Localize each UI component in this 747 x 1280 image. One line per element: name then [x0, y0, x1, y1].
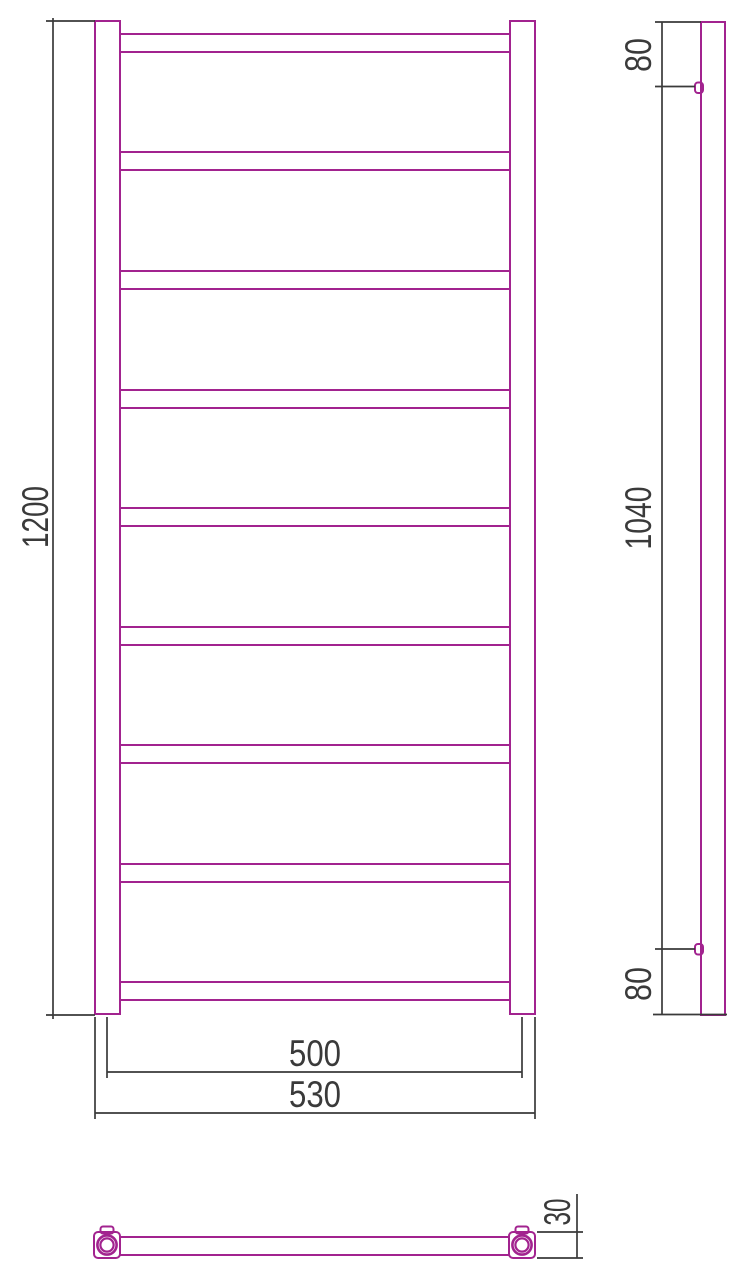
- dimensions: 1200 500 530 80 1040 80 30: [15, 18, 727, 1258]
- right-fitting-inner-ring: [515, 1238, 528, 1251]
- bottom-tube: [120, 1237, 509, 1255]
- dim-side-lines: [653, 22, 727, 1015]
- left-fitting-inner-ring: [100, 1238, 113, 1251]
- dim-label-side-top-offset: 80: [618, 38, 659, 72]
- side-view: [695, 22, 725, 1015]
- right-rail: [510, 21, 535, 1014]
- drawing-page: 1200 500 530 80 1040 80 30: [0, 0, 747, 1280]
- dim-label-rail-center-width: 500: [289, 1033, 341, 1074]
- bottom-view: [94, 1227, 535, 1259]
- technical-drawing: 1200 500 530 80 1040 80 30: [0, 0, 747, 1280]
- dim-label-overall-width: 530: [289, 1074, 341, 1115]
- dim-label-side-bottom-offset: 80: [618, 967, 659, 1001]
- side-profile: [701, 22, 725, 1015]
- right-fitting: [509, 1227, 535, 1259]
- crossbars: [120, 34, 510, 1000]
- front-view: [95, 21, 535, 1014]
- left-rail: [95, 21, 120, 1014]
- dim-label-height: 1200: [15, 486, 56, 548]
- dim-label-depth: 30: [537, 1199, 578, 1226]
- dim-label-connector-span: 1040: [618, 487, 659, 550]
- left-fitting: [94, 1227, 120, 1259]
